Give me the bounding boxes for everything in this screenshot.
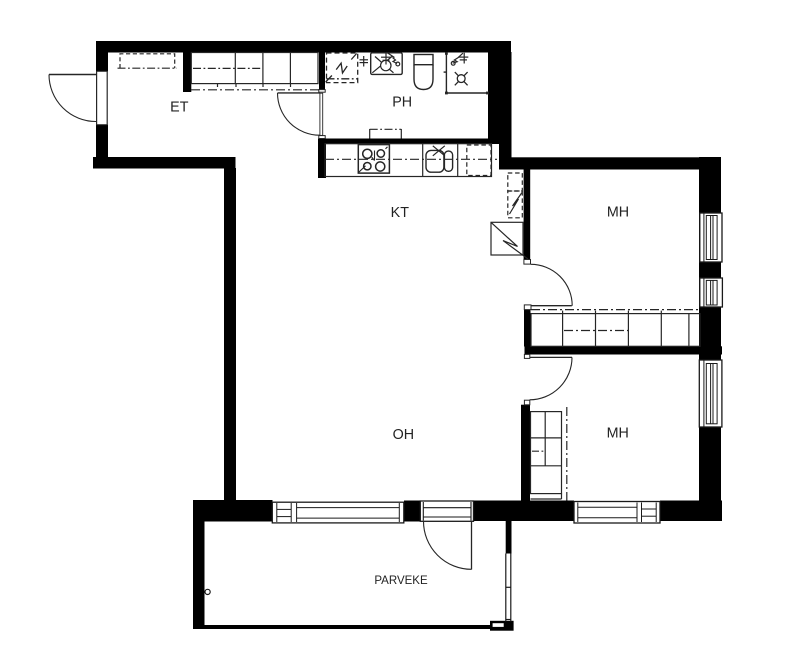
svg-text:MH: MH [607, 205, 629, 221]
svg-text:PARVEKE: PARVEKE [374, 575, 428, 587]
svg-text:KT: KT [391, 205, 410, 221]
svg-text:PH: PH [392, 94, 412, 110]
svg-text:OH: OH [393, 427, 414, 443]
svg-text:ET: ET [170, 99, 189, 115]
svg-text:MH: MH [607, 426, 629, 442]
